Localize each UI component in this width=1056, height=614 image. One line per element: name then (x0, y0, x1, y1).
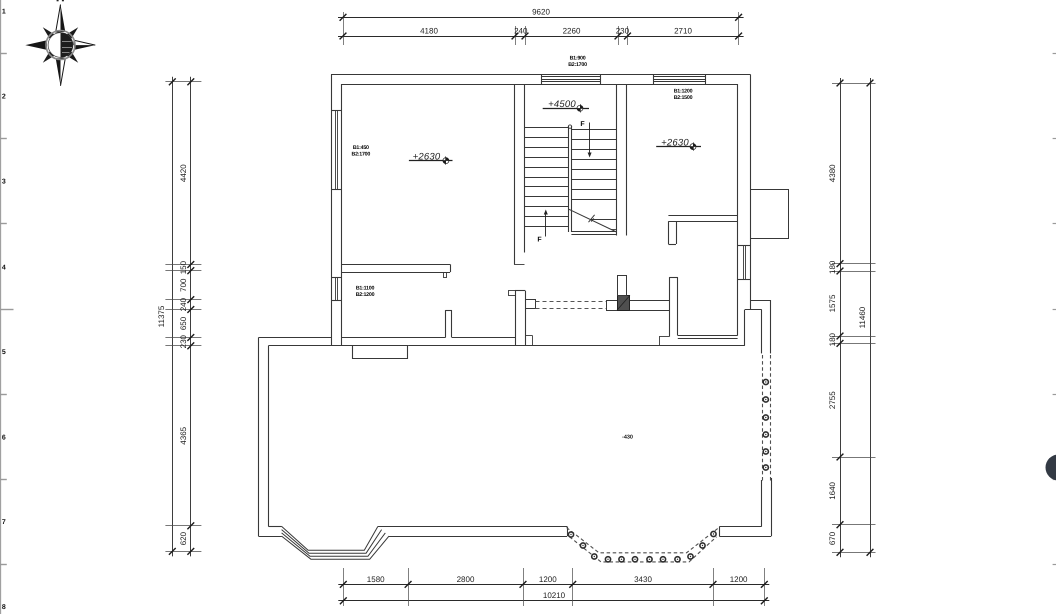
svg-text:2710: 2710 (674, 26, 692, 35)
svg-text:1580: 1580 (367, 575, 385, 584)
svg-text:2800: 2800 (457, 575, 475, 584)
svg-text:B2:1500: B2:1500 (674, 95, 693, 101)
svg-text:240: 240 (179, 297, 188, 311)
svg-text:F: F (537, 237, 542, 244)
svg-text:9620: 9620 (532, 8, 550, 17)
svg-text:1200: 1200 (730, 575, 748, 584)
svg-text:620: 620 (179, 531, 188, 545)
svg-text:180: 180 (828, 260, 837, 274)
svg-text:1575: 1575 (828, 294, 837, 312)
svg-text:-430: -430 (622, 435, 633, 441)
svg-text:3: 3 (2, 179, 6, 186)
svg-text:1: 1 (2, 9, 6, 16)
svg-text:4: 4 (2, 264, 6, 271)
svg-text:10210: 10210 (543, 591, 566, 600)
svg-text:650: 650 (179, 316, 188, 330)
svg-text:8: 8 (2, 604, 6, 611)
svg-text:4180: 4180 (420, 26, 438, 35)
svg-text:670: 670 (828, 531, 837, 545)
svg-text:4380: 4380 (828, 164, 837, 182)
svg-text:7: 7 (2, 519, 6, 526)
svg-text:B2:1700: B2:1700 (352, 151, 371, 157)
svg-text:4365: 4365 (179, 426, 188, 444)
svg-text:150: 150 (179, 260, 188, 274)
svg-text:4420: 4420 (179, 164, 188, 182)
svg-text:2260: 2260 (563, 26, 581, 35)
svg-text:180: 180 (828, 332, 837, 346)
svg-text:11375: 11375 (157, 305, 166, 327)
svg-text:2: 2 (2, 94, 6, 101)
svg-text:230: 230 (616, 26, 630, 35)
svg-text:1640: 1640 (828, 481, 837, 499)
svg-text:700: 700 (179, 278, 188, 292)
svg-text:B1:1100: B1:1100 (356, 286, 375, 292)
svg-text:5: 5 (2, 349, 6, 356)
svg-text:B2:1700: B2:1700 (568, 62, 587, 68)
svg-text:3430: 3430 (634, 575, 652, 584)
svg-text:240: 240 (514, 26, 528, 35)
svg-text:B1:450: B1:450 (353, 145, 369, 151)
svg-text:B2:1200: B2:1200 (356, 292, 375, 298)
svg-text:2755: 2755 (828, 391, 837, 409)
svg-text:11460: 11460 (858, 306, 867, 328)
svg-text:230: 230 (179, 334, 188, 348)
svg-text:B1:1200: B1:1200 (674, 89, 693, 95)
svg-text:6: 6 (2, 434, 6, 441)
svg-text:F: F (580, 121, 585, 128)
svg-text:1200: 1200 (539, 575, 557, 584)
svg-text:B1:900: B1:900 (570, 56, 586, 62)
